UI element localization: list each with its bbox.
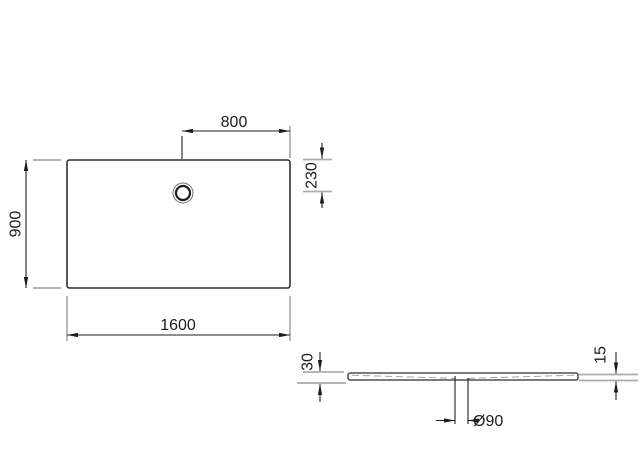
dimension-label-1600: 1600 <box>160 317 196 334</box>
dimension-drain-diameter: Ø90 <box>436 376 503 430</box>
dimension-drain-offset-x: 800 <box>182 114 290 159</box>
dimension-label-230: 230 <box>304 162 321 189</box>
dimension-label-800: 800 <box>221 114 248 131</box>
dimension-label-drain-diameter: Ø90 <box>473 413 503 430</box>
dimension-label-15: 15 <box>593 346 610 364</box>
dimension-depth: 900 <box>8 160 62 288</box>
technical-drawing-page: 800 230 900 1600 <box>0 0 640 452</box>
dimension-label-30: 30 <box>300 353 317 371</box>
drain-inner-ring-icon <box>176 186 190 200</box>
side-view: 30 15 Ø90 <box>297 346 638 430</box>
dimension-drain-offset-y: 230 <box>303 143 332 208</box>
top-view: 800 230 900 1600 <box>8 114 333 341</box>
shower-tray-technical-drawing: 800 230 900 1600 <box>0 0 640 452</box>
dimension-label-900: 900 <box>8 211 25 238</box>
dimension-width: 1600 <box>67 296 290 341</box>
tray-outline <box>67 160 290 288</box>
tray-profile <box>348 373 578 380</box>
dimension-height-right: 15 <box>579 346 638 400</box>
drain-circle <box>173 183 193 203</box>
dimension-height-left: 30 <box>297 352 346 402</box>
